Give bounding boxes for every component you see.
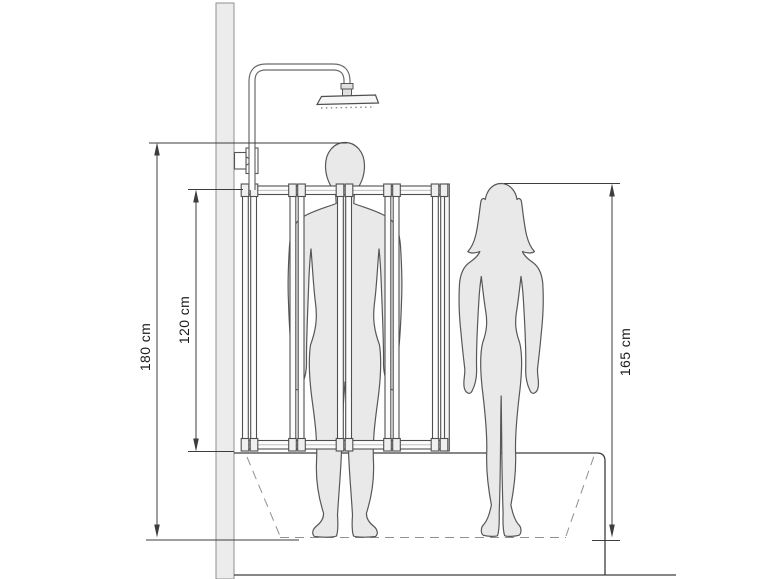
dim-label-180: 180 cm	[137, 323, 153, 371]
wall	[216, 3, 234, 579]
bath-screen-end-profile	[445, 184, 450, 451]
floor-extension-lines	[146, 540, 620, 541]
dim-120-arrow-down	[193, 439, 199, 452]
dim-label-165: 165 cm	[617, 328, 633, 376]
shower-head	[317, 95, 379, 108]
woman-silhouette	[459, 184, 543, 537]
bathtub	[234, 453, 605, 575]
diagram-svg	[0, 0, 772, 579]
dim-180-arrow-up	[154, 143, 160, 156]
bathtub-inner-outline	[247, 456, 594, 538]
dim-120-arrow-up	[193, 190, 199, 203]
dim-165-arrow-down	[609, 525, 615, 538]
shower-head-connector	[341, 84, 353, 97]
dim-180-arrow-down	[154, 525, 160, 538]
diagram-canvas: 180 cm 120 cm 165 cm	[0, 0, 772, 579]
dim-165-arrow-up	[609, 184, 615, 197]
dim-label-120: 120 cm	[176, 296, 192, 344]
bath-screen	[241, 184, 449, 451]
